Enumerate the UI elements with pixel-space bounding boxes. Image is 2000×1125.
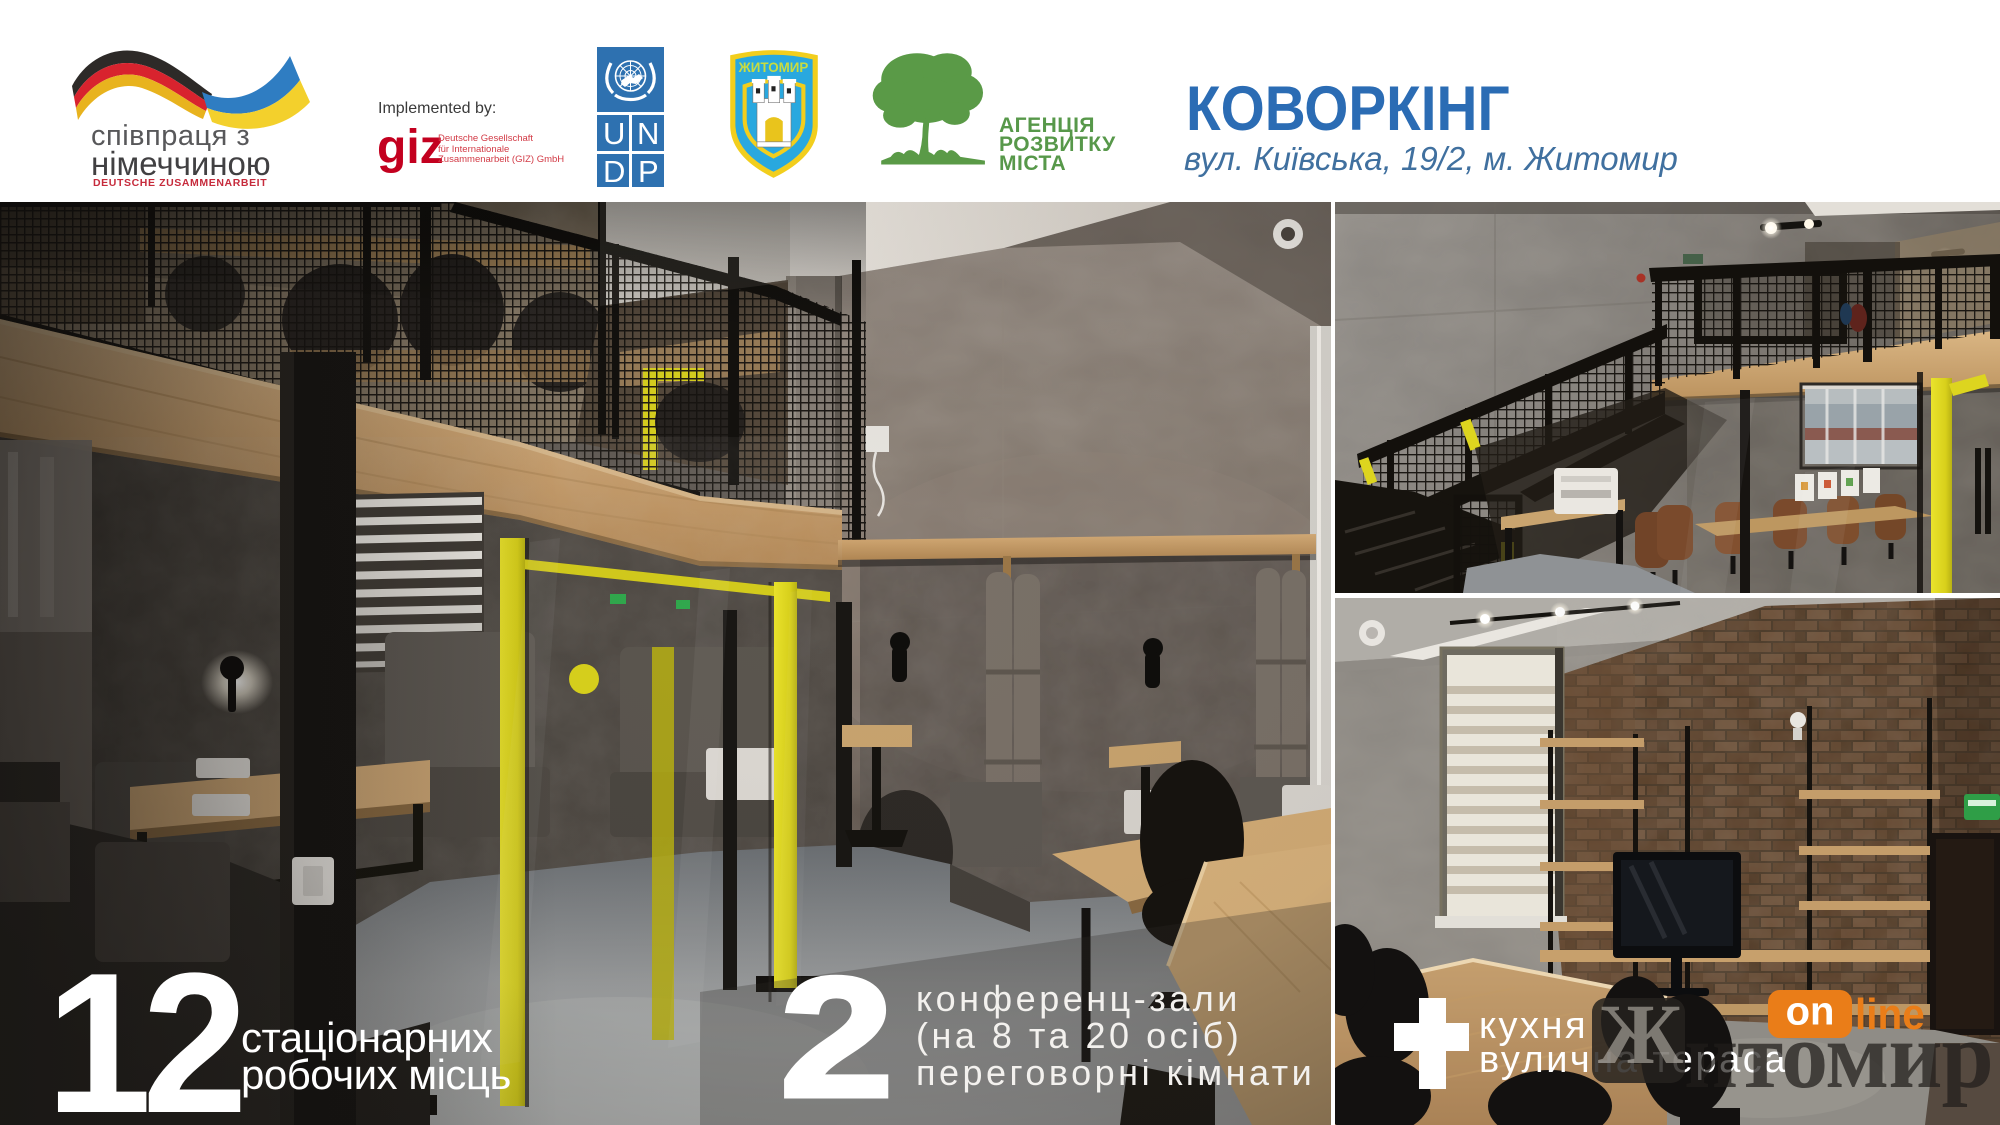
svg-text:N: N [637,116,659,151]
svg-text:D: D [603,154,625,187]
svg-text:ЖИТОМИР: ЖИТОМИР [738,60,809,75]
svg-text:P: P [638,154,659,187]
svg-text:U: U [603,116,625,151]
